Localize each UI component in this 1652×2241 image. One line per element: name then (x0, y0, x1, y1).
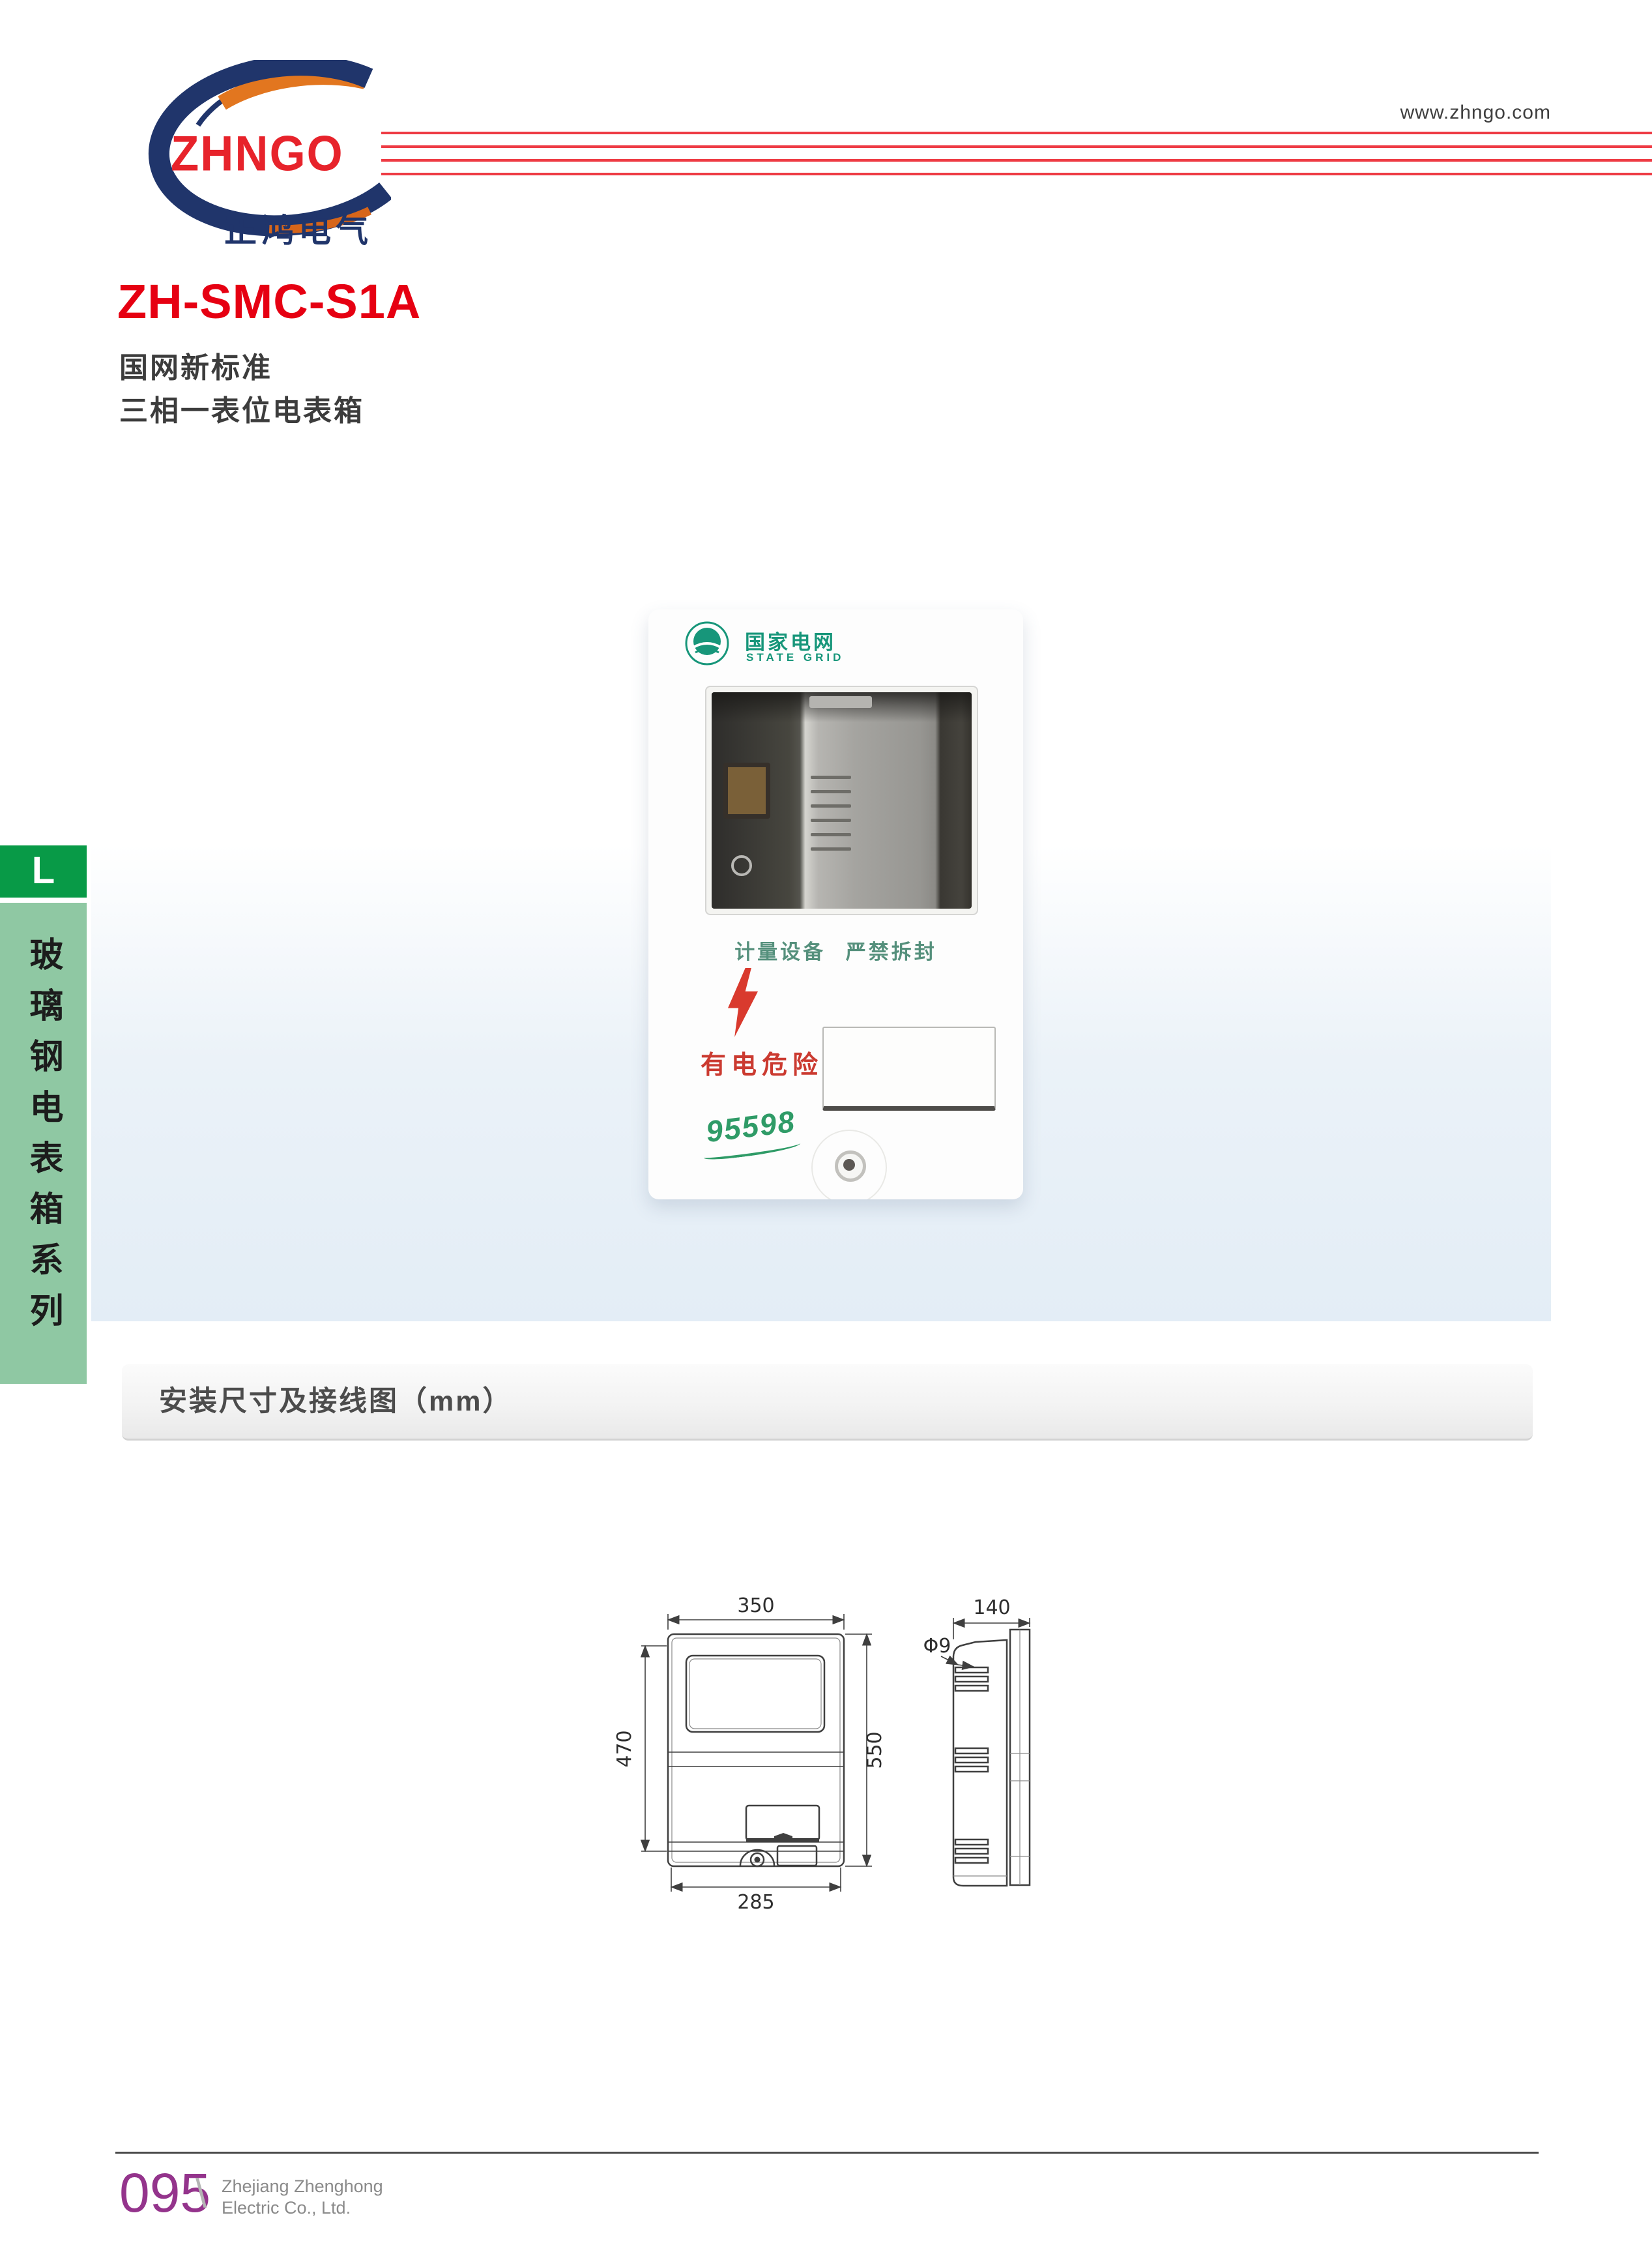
catalog-page: ZHNGO 正鸿电气 www.zhngo.com ZH-SMC-S1A 国网新标… (0, 0, 1652, 2241)
vent-slot (811, 776, 851, 779)
front-view-drawing: 350 470 550 285 (613, 1590, 886, 1916)
window-latch (809, 696, 872, 708)
flap-notch (895, 1106, 921, 1111)
product-standard-line: 国网新标准 (119, 344, 272, 386)
vent-slot (811, 847, 851, 851)
website-url: www.zhngo.com (1316, 102, 1551, 124)
sidebar-index-letter: L (0, 845, 87, 898)
brand-chinese-name: 正鸿电气 (224, 205, 373, 252)
header-rule-2 (381, 145, 1652, 148)
header-rule-1 (381, 132, 1652, 134)
lightning-bolt-icon (728, 968, 758, 1037)
metering-warning-text: 计量设备 严禁拆封 (648, 935, 1023, 965)
inner-keyhole (731, 855, 752, 876)
vent-slot (811, 833, 851, 836)
dim-front-height-left: 470 (613, 1730, 636, 1767)
vent-slot (811, 790, 851, 793)
footer-rule (115, 2152, 1539, 2154)
lock-keyhole-dot (843, 1159, 855, 1171)
state-grid-name-en: STATE GRID (746, 651, 844, 664)
electric-danger-text: 有电危险 (701, 1045, 823, 1081)
dim-front-width-top: 350 (737, 1594, 774, 1617)
dim-side-hole: Φ9 (923, 1635, 951, 1658)
state-grid-emblem-icon (684, 620, 731, 667)
card-flap-panel (822, 1027, 996, 1111)
hinge-block (723, 763, 770, 819)
dim-front-width-bottom: 285 (737, 1891, 774, 1914)
sidebar-series-label: 玻璃钢电表箱系列 (26, 937, 60, 1343)
meter-window (705, 686, 978, 915)
product-model-title: ZH-SMC-S1A (117, 274, 421, 329)
product-photo: 国家电网 STATE GRID 计量设备 严禁拆封 有电危险 95598 (648, 609, 1023, 1199)
side-ribs (955, 1667, 988, 1863)
dim-side-depth: 140 (973, 1596, 1010, 1619)
meter-window-interior (712, 692, 972, 909)
sidebar-series-tab: 玻璃钢电表箱系列 (0, 903, 87, 1384)
company-name-line2: Electric Co., Ltd. (222, 2197, 383, 2219)
header-rule-4 (381, 173, 1652, 175)
footer-separator: \ (196, 2171, 207, 2217)
product-type-line: 三相一表位电表箱 (119, 387, 364, 429)
side-view-drawing: 140 Φ9 (912, 1590, 1062, 1916)
company-name: Zhejiang Zhenghong Electric Co., Ltd. (222, 2176, 383, 2219)
section-header-bar: 安装尺寸及接线图（mm） (122, 1364, 1533, 1441)
vent-slot (811, 804, 851, 808)
dim-front-height-right: 550 (863, 1731, 886, 1768)
header-rule-3 (381, 159, 1652, 162)
section-title: 安装尺寸及接线图（mm） (122, 1364, 1533, 1439)
company-name-line1: Zhejiang Zhenghong (222, 2176, 383, 2197)
vent-slot (811, 819, 851, 822)
brand-wordmark: ZHNGO (171, 125, 344, 182)
